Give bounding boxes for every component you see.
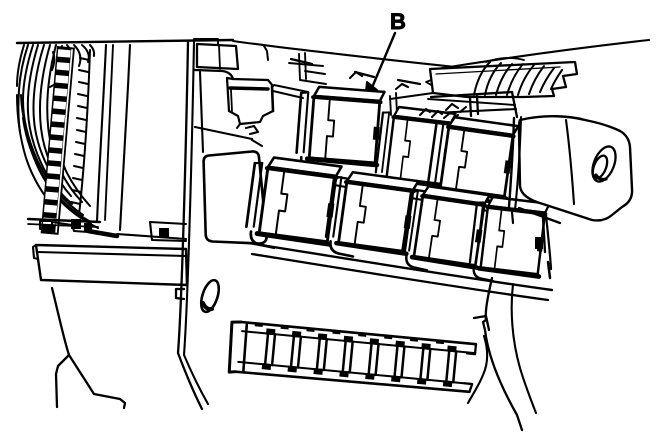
svg-text:B: B: [390, 9, 406, 34]
